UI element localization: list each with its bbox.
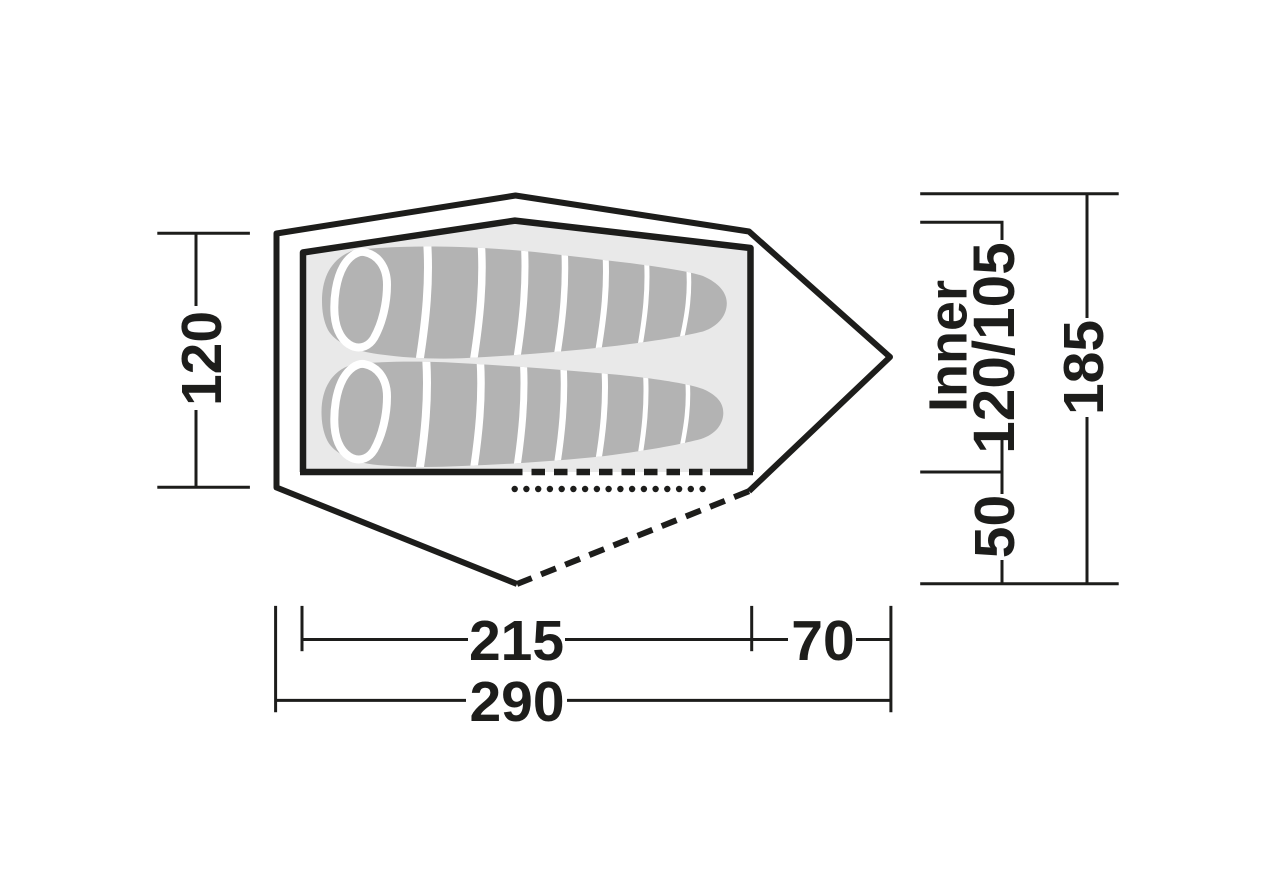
svg-text:185: 185 (1052, 320, 1116, 415)
svg-text:50: 50 (963, 495, 1027, 558)
svg-text:120: 120 (170, 311, 234, 406)
svg-text:215: 215 (469, 609, 564, 673)
svg-text:290: 290 (469, 670, 564, 734)
svg-text:120/105: 120/105 (962, 242, 1027, 453)
svg-text:70: 70 (791, 609, 854, 673)
